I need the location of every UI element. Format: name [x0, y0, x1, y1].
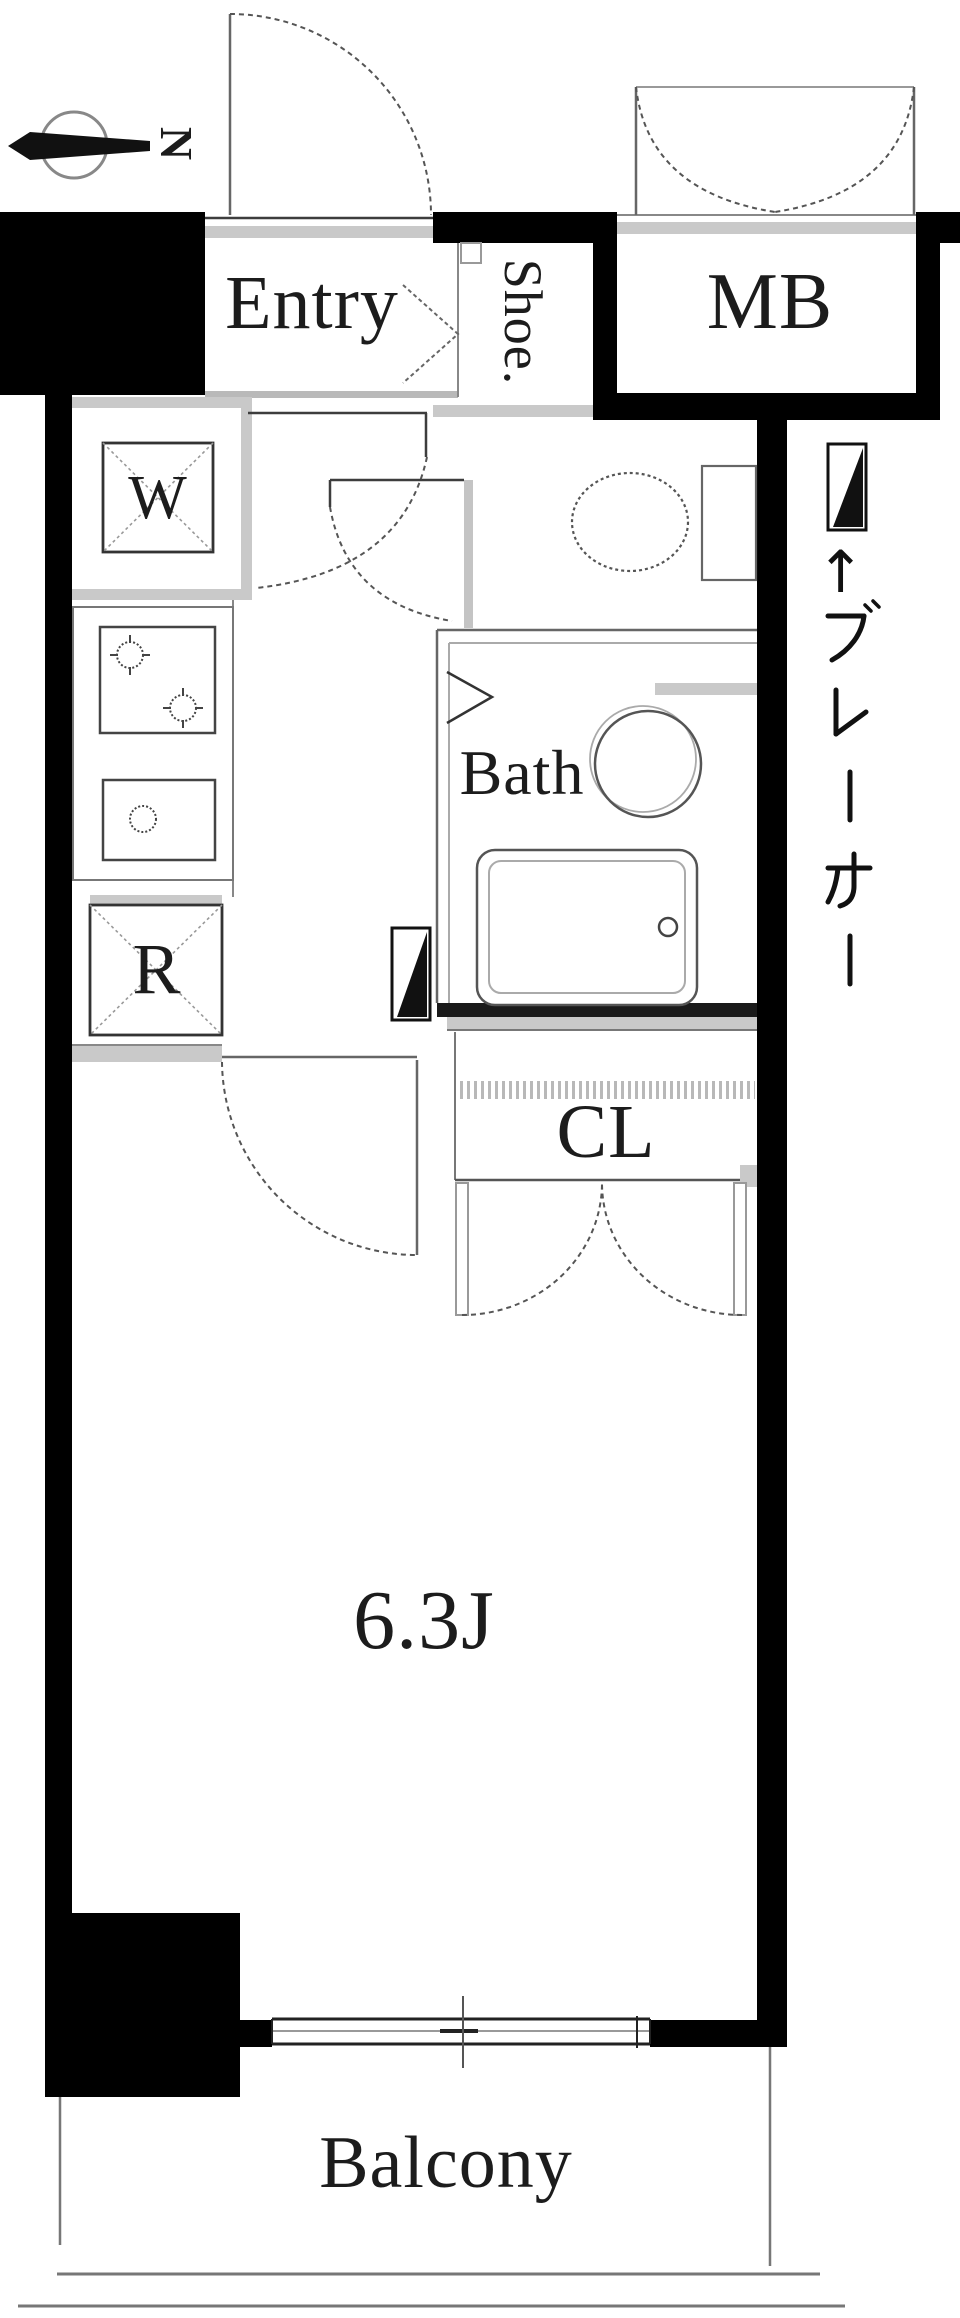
kitchen-fixtures — [100, 627, 215, 860]
kana-ka — [828, 854, 870, 906]
balcony-label: Balcony — [319, 2126, 573, 2200]
burner-icon — [117, 642, 143, 668]
entry-door-arc — [230, 14, 431, 215]
closet-top-wall — [447, 1017, 757, 1031]
compass-north-label: N — [153, 127, 199, 161]
meter-box-label: MB — [707, 262, 834, 342]
breaker-label-glyphs — [828, 601, 879, 984]
genkan-step — [205, 391, 458, 398]
toilet-door-arc — [330, 507, 452, 621]
toilet-bowl-icon — [572, 473, 688, 571]
toilet-wall-left — [464, 480, 473, 628]
kana-re — [836, 690, 866, 734]
washer-closet-wall-right — [241, 397, 252, 600]
washer-closet-wall-top — [72, 397, 252, 408]
floor-plan-drawing — [0, 0, 960, 2318]
closet-door-leaf-right — [734, 1183, 746, 1315]
mb-door-arc-right — [775, 87, 914, 212]
entry-direction-arrow-icon — [403, 285, 458, 383]
kitchen-stub-wall — [72, 1045, 222, 1062]
hall-door-arc — [256, 457, 427, 588]
closet-door-arc-right — [602, 1183, 742, 1315]
toilet-fixture — [572, 466, 756, 580]
refrigerator-label: R — [132, 933, 181, 1005]
closet-door-arc-left — [462, 1183, 602, 1315]
breaker-arrow-icon: ↑ — [816, 543, 866, 601]
mb-door-arc-left — [636, 87, 775, 212]
closet-door-leaf-left — [456, 1183, 468, 1315]
mb-threshold — [617, 222, 916, 234]
sink-icon — [103, 780, 215, 860]
fridge-wall-top — [90, 895, 222, 905]
washer-label: W — [128, 467, 188, 529]
shoe-bottom-wall — [433, 405, 593, 417]
stove-icon — [100, 627, 215, 733]
washer-closet-wall-bottom — [72, 589, 252, 600]
bath-folding-door-icon — [447, 672, 492, 723]
sink-drain-icon — [130, 806, 156, 832]
floor-plan: Entry Shoe. MB Bath CL 6.3J Balcony W R … — [0, 0, 960, 2318]
kitchen-counter-outline — [73, 607, 233, 880]
bath-counter-edge — [655, 683, 757, 695]
shoe-box-label: Shoe. — [496, 259, 550, 386]
room-size-label: 6.3J — [353, 1579, 495, 1663]
entry-label: Entry — [225, 265, 399, 341]
breaker-label — [847, 799, 849, 801]
bath-basin-icon — [595, 711, 701, 817]
entry-door-jamb — [461, 243, 481, 263]
burner-icon — [170, 695, 196, 721]
toilet-tank-icon — [702, 466, 756, 580]
compass-icon — [8, 112, 150, 178]
entry-threshold — [205, 226, 433, 238]
balcony-window — [272, 1996, 650, 2068]
bathtub-icon — [477, 850, 697, 1005]
closet-label: CL — [556, 1094, 655, 1170]
room-door-arc — [222, 1062, 417, 1255]
kana-bu — [828, 601, 879, 660]
bath-label: Bath — [460, 741, 585, 805]
